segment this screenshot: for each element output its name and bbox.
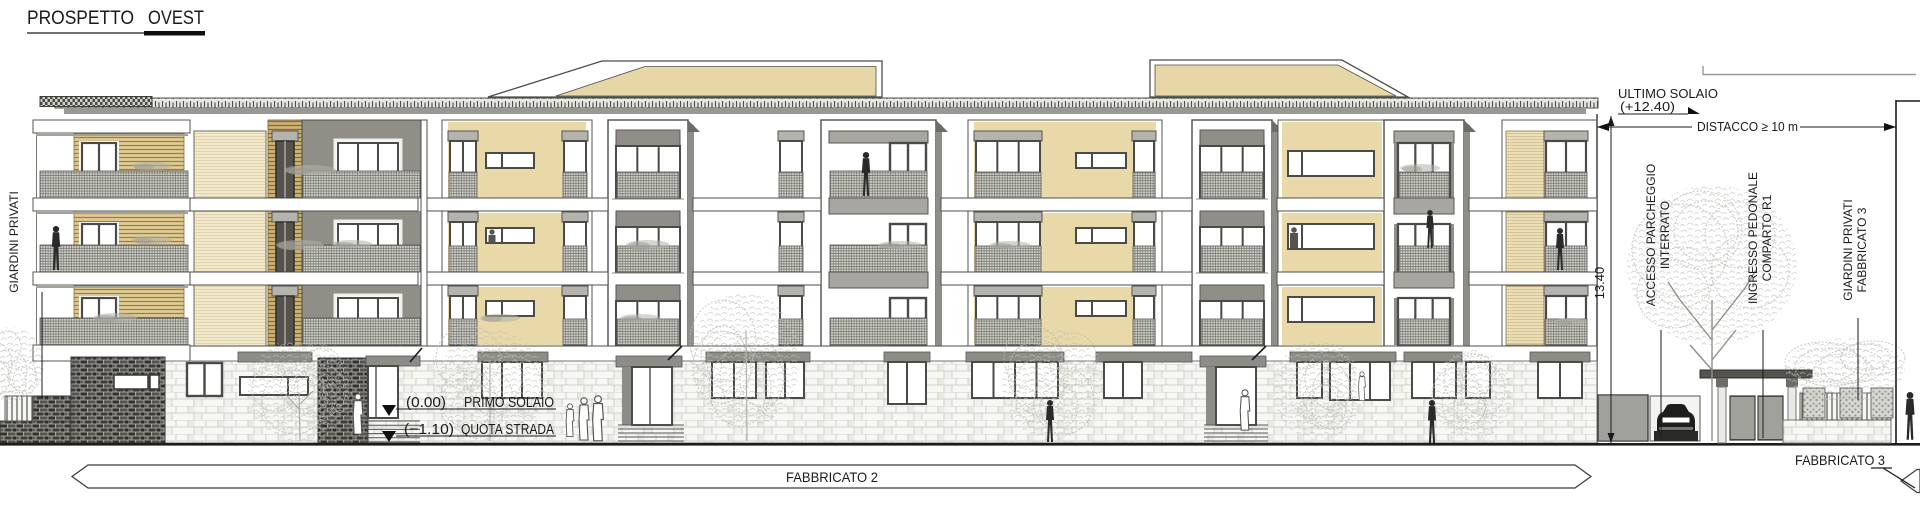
- svg-text:(0.00): (0.00): [406, 394, 446, 411]
- svg-text:GIARDINI PRIVATI: GIARDINI PRIVATI: [7, 191, 21, 293]
- svg-text:OVEST: OVEST: [148, 8, 204, 29]
- svg-text:13.40: 13.40: [1592, 267, 1607, 300]
- svg-text:INGRESSO PEDONALE: INGRESSO PEDONALE: [1746, 172, 1760, 304]
- svg-text:ACCESSO PARCHEGGIO: ACCESSO PARCHEGGIO: [1644, 164, 1658, 306]
- svg-text:PRIMO SOLAIO: PRIMO SOLAIO: [464, 394, 554, 411]
- svg-text:DISTACCO ≥ 10 m: DISTACCO ≥ 10 m: [1697, 119, 1798, 134]
- svg-text:COMPARTO R1: COMPARTO R1: [1760, 194, 1774, 281]
- svg-text:(+12.40): (+12.40): [1620, 99, 1675, 114]
- svg-text:(−1.10): (−1.10): [404, 421, 454, 438]
- svg-text:INTERRATO: INTERRATO: [1658, 201, 1672, 269]
- svg-text:QUOTA STRADA: QUOTA STRADA: [461, 421, 554, 438]
- svg-text:GIARDINI PRIVATI: GIARDINI PRIVATI: [1841, 199, 1855, 301]
- svg-text:FABBRICATO 3: FABBRICATO 3: [1855, 207, 1869, 292]
- svg-text:FABBRICATO 2: FABBRICATO 2: [786, 469, 878, 485]
- svg-text:FABBRICATO 3: FABBRICATO 3: [1795, 452, 1885, 468]
- svg-text:PROSPETTO: PROSPETTO: [27, 8, 134, 29]
